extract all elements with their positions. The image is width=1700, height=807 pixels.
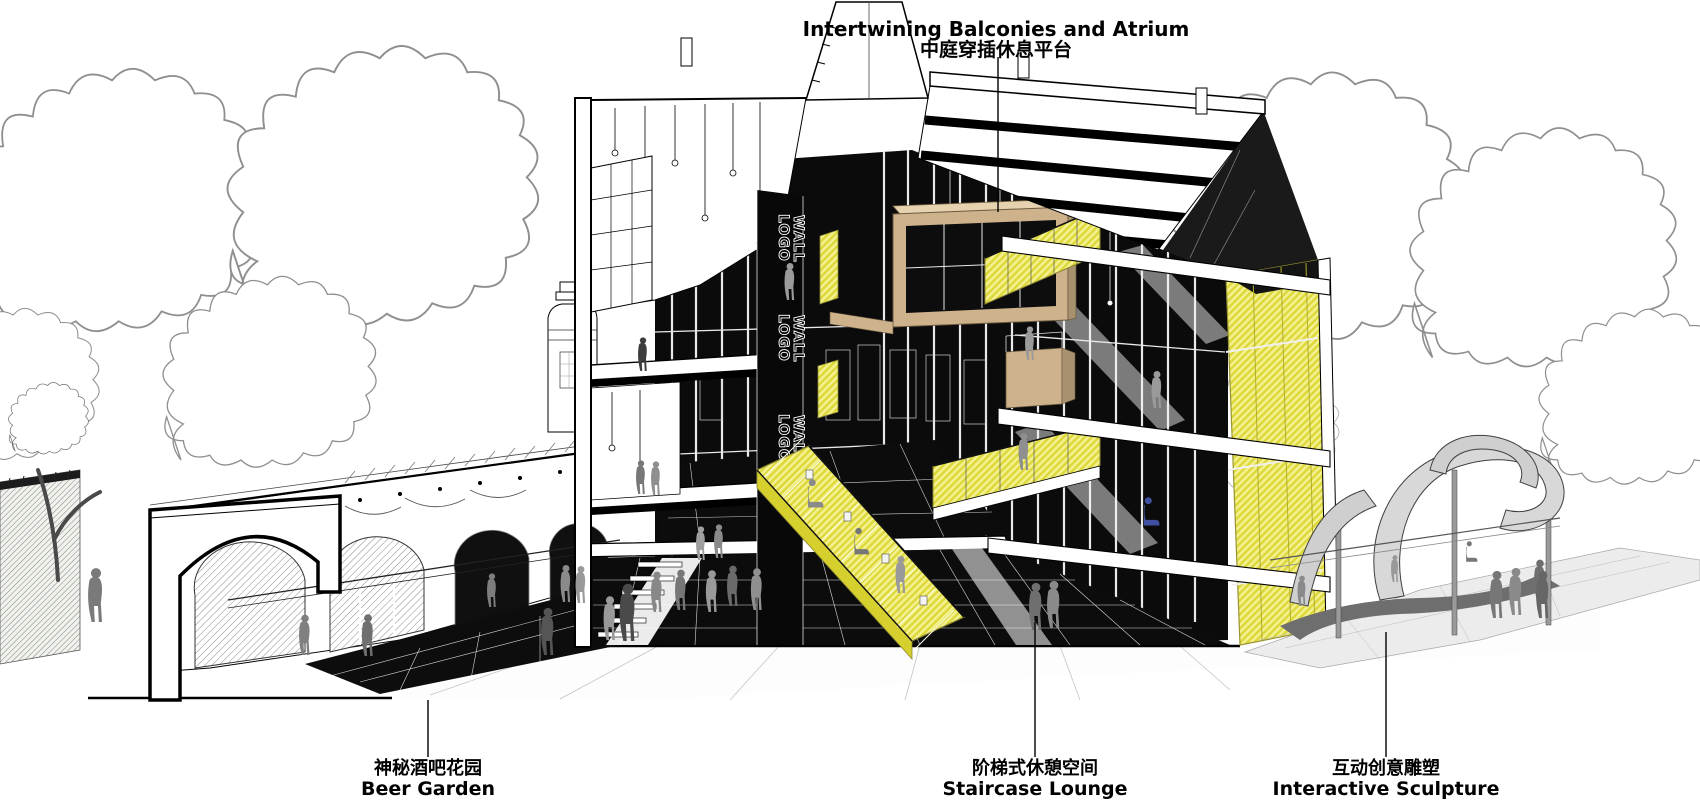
logo-wall-text: LOGO WALL LOGO WALL LOGO WALL	[775, 214, 806, 463]
label-staircase-lounge: 阶梯式休憩空间 Staircase Lounge	[942, 759, 1127, 800]
label-beer-garden: 神秘酒吧花园 Beer Garden	[361, 759, 495, 800]
section-drawing: LOGO WALL LOGO WALL LOGO WALL	[0, 0, 1700, 807]
svg-text:LOGO: LOGO	[775, 414, 791, 462]
label-atrium-en: Intertwining Balconies and Atrium	[803, 18, 1190, 40]
label-atrium: Intertwining Balconies and Atrium 中庭穿插休息…	[803, 18, 1190, 62]
retaining-wall	[0, 470, 80, 664]
svg-text:LOGO: LOGO	[775, 314, 791, 362]
label-interactive-sculpture-zh: 互动创意雕塑	[1273, 759, 1500, 779]
label-atrium-zh: 中庭穿插休息平台	[803, 40, 1190, 61]
logo-wall-column: LOGO WALL LOGO WALL LOGO WALL	[757, 190, 806, 645]
label-interactive-sculpture: 互动创意雕塑 Interactive Sculpture	[1273, 759, 1500, 800]
label-staircase-lounge-zh: 阶梯式休憩空间	[942, 759, 1127, 779]
left-cut-wall	[575, 98, 591, 647]
label-staircase-lounge-en: Staircase Lounge	[942, 779, 1127, 800]
label-beer-garden-en: Beer Garden	[361, 779, 495, 800]
label-beer-garden-zh: 神秘酒吧花园	[361, 759, 495, 779]
svg-text:LOGO: LOGO	[775, 214, 791, 262]
svg-text:WALL: WALL	[790, 215, 806, 263]
label-interactive-sculpture-en: Interactive Sculpture	[1273, 779, 1500, 800]
svg-text:WALL: WALL	[790, 315, 806, 363]
main-building: LOGO WALL LOGO WALL LOGO WALL	[575, 2, 1338, 659]
architectural-section-perspective: LOGO WALL LOGO WALL LOGO WALL	[0, 0, 1700, 807]
